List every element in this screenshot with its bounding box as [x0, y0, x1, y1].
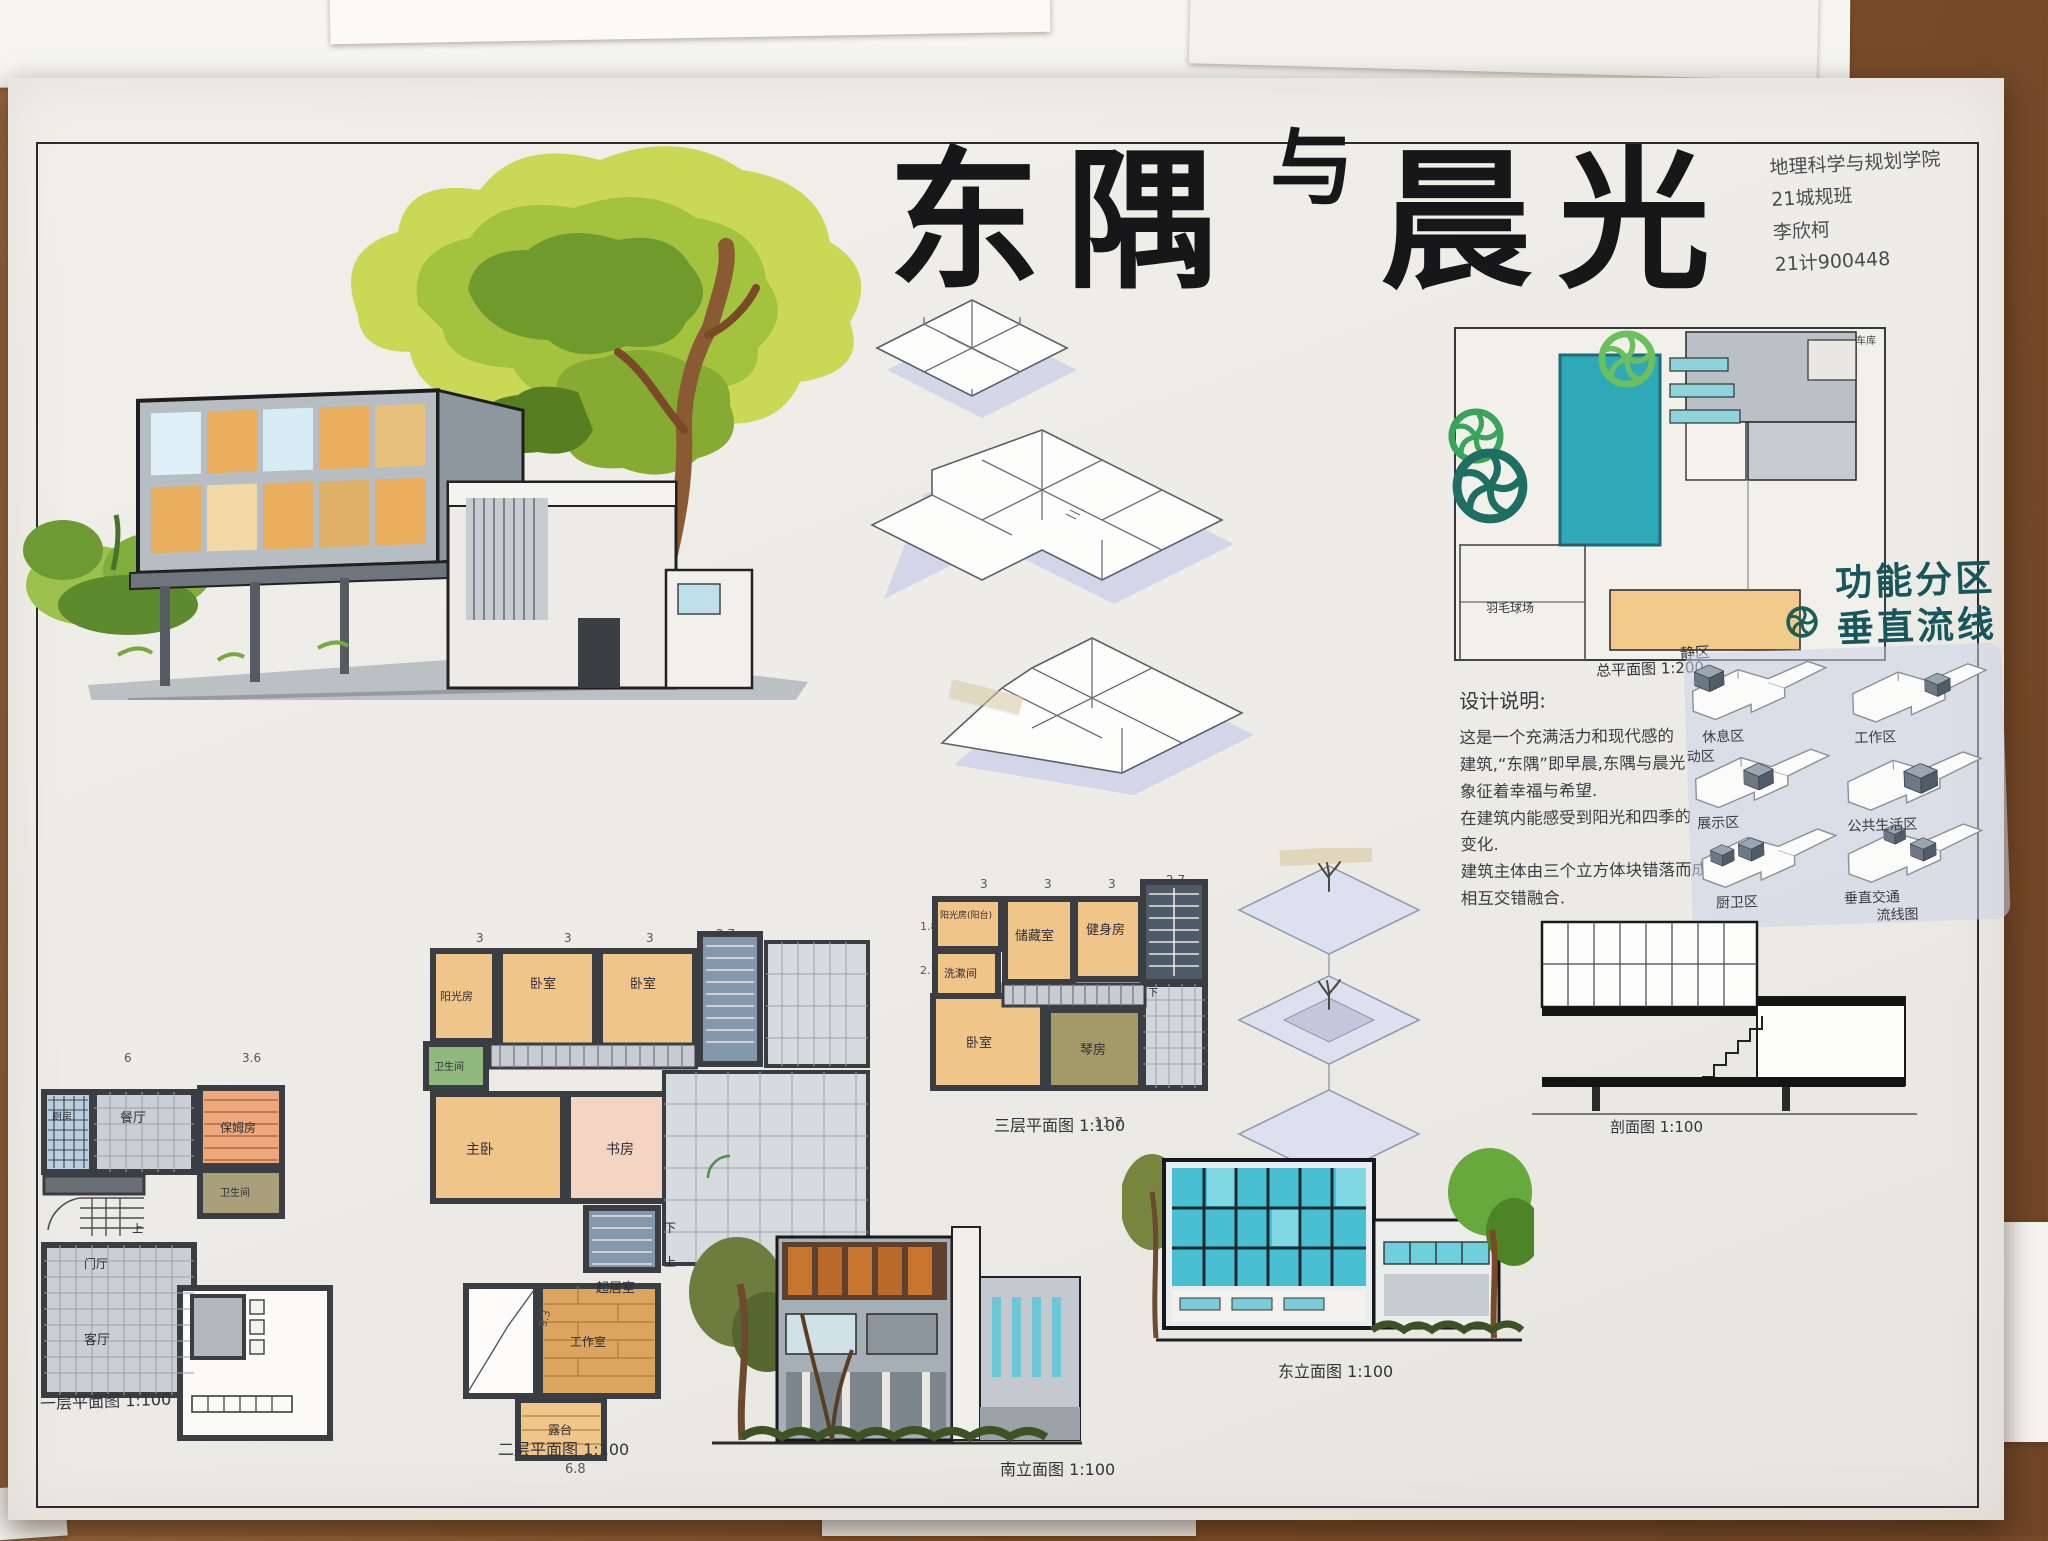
site-plan: 羽毛球场 车库 — [1448, 318, 1896, 670]
room-label: 保姆房 — [220, 1120, 256, 1135]
section-base-slab — [1542, 1077, 1905, 1087]
room-label: 阳光房(阳台) — [940, 909, 992, 921]
room-label: 卧室 — [530, 976, 556, 992]
section-drawing — [1532, 912, 1917, 1124]
section-slab-mid — [1542, 1007, 1757, 1016]
floor1-plan-label: 一层平面图 1:100 — [40, 1386, 172, 1415]
room-label: 洗漱间 — [944, 967, 977, 980]
washi-tape — [1280, 848, 1373, 866]
east-elevation — [1122, 1142, 1534, 1364]
stair-label: 下 — [1148, 988, 1158, 999]
title-part-2: 晨光 — [1380, 112, 1736, 298]
room-label: 卫生间 — [434, 1060, 464, 1073]
function-zone-heading: 功能分区 垂直流线 — [1834, 555, 1997, 653]
east-elevation-label: 东立面图 1:100 — [1278, 1358, 1393, 1382]
room-label: 起居室 — [596, 1280, 635, 1296]
section-stair — [1702, 1016, 1762, 1077]
title-conjunction: 与 — [1270, 112, 1354, 210]
perspective-rendering — [18, 100, 878, 700]
floor3-width-dim: 11.7 — [1094, 1116, 1123, 1131]
room-label: 露台 — [548, 1422, 572, 1437]
room-label: 门厅 — [84, 1256, 108, 1271]
room-label: 卧室 — [966, 1035, 992, 1051]
dim: 3 — [1044, 877, 1052, 891]
east-spandrel-windows — [1180, 1298, 1324, 1310]
room-label: 客厅 — [84, 1332, 110, 1348]
section-column — [1782, 1087, 1790, 1111]
section-slab-right — [1757, 997, 1905, 1006]
zone-diagram-work — [1844, 659, 1996, 726]
site-pool — [1560, 355, 1660, 545]
axon-plan-3 — [942, 638, 1254, 795]
court-label: 羽毛球场 — [1486, 601, 1534, 615]
stair-label: 上 — [132, 1222, 143, 1235]
floor3-plan: 3 3 3 2.7 1.8 2.1 阳光房(阳台) 储藏室 健身房 洗漱间 卧室… — [918, 872, 1210, 1130]
room-label: 主卧 — [466, 1142, 494, 1158]
elevation-top-band — [782, 1242, 947, 1300]
dim: 6 — [124, 1051, 132, 1065]
section-label: 剖面图 1:100 — [1610, 1116, 1703, 1137]
heading-line-1: 功能分区 — [1834, 555, 1996, 607]
garage-label: 车库 — [1856, 334, 1876, 347]
zone-label-kitchen-bath: 厨卫区 — [1716, 891, 1759, 912]
corridor — [1003, 984, 1145, 1006]
axon-plan-1 — [877, 300, 1077, 418]
title-part-1: 东隅 — [888, 112, 1244, 298]
stair-curve — [48, 1198, 80, 1230]
zone-label-display: 展示区 — [1697, 812, 1740, 833]
stair-label: 下 — [664, 1221, 676, 1235]
dim: 3 — [980, 877, 988, 891]
room-label: 健身房 — [1086, 922, 1125, 938]
dim: 3 — [646, 931, 654, 945]
elevation-window — [786, 1314, 856, 1354]
room-label: 卧室 — [630, 976, 656, 992]
room-label: 卫生间 — [220, 1186, 250, 1199]
room-label: 琴房 — [1080, 1042, 1106, 1058]
poster-title: 东隅 与 晨光 — [888, 112, 1736, 298]
room-label: 餐厅 — [120, 1110, 146, 1126]
elevation-core — [952, 1227, 980, 1440]
zone-label-active: 动区 — [1687, 746, 1716, 767]
grass-tufts — [118, 642, 348, 660]
zone-label-rest: 休息区 — [1702, 726, 1745, 747]
annex-room — [192, 1296, 244, 1358]
zone-diagram-rest — [1684, 656, 1836, 723]
south-elevation — [682, 1222, 1106, 1470]
zone-diagram-kitchen — [1693, 824, 1845, 891]
site-building — [1670, 332, 1856, 480]
section-column — [1592, 1087, 1600, 1111]
room-label: 工作室 — [570, 1334, 606, 1349]
dim: 3 — [564, 931, 572, 945]
dim: 3.6 — [242, 1051, 261, 1065]
elevation-window — [867, 1314, 937, 1354]
function-zone-panel: 休息区 动区 工作区 展示区 公共生活区 厨卫区 垂直交通 流线图 — [1683, 643, 2010, 930]
east-lower-band — [1384, 1274, 1489, 1316]
south-elevation-label: 南立面图 1:100 — [1000, 1456, 1115, 1480]
house-right-volume — [448, 482, 752, 688]
photo-canvas: 三层平面图 — [0, 0, 2048, 1536]
stair-label: 上 — [664, 1255, 676, 1269]
axon-plan-2 — [872, 430, 1234, 604]
corridor — [490, 1044, 696, 1068]
section-right-box — [1757, 997, 1905, 1085]
floor2-plan-label: 二层平面图 1:100 — [498, 1436, 629, 1460]
axonometric-plans — [852, 278, 1452, 848]
dim: 3 — [1108, 877, 1116, 891]
room-label: 厨房 — [52, 1110, 72, 1123]
annex-columns — [250, 1300, 264, 1354]
credits-block: 地理科学与规划学院 21城规班 李欣柯 21计900448 — [1769, 140, 2005, 281]
zone-diagram-public — [1839, 747, 1991, 814]
room-label: 储藏室 — [1015, 928, 1054, 944]
room-label: 阳光房 — [440, 989, 473, 1003]
floor2-width-dim: 6.8 — [565, 1462, 586, 1477]
dim: 3 — [476, 931, 484, 945]
zone-label-work: 工作区 — [1854, 726, 1897, 747]
zone-label-public: 公共生活区 — [1847, 814, 1918, 836]
room-label: 书房 — [606, 1142, 634, 1158]
stair-wall — [44, 1176, 144, 1194]
